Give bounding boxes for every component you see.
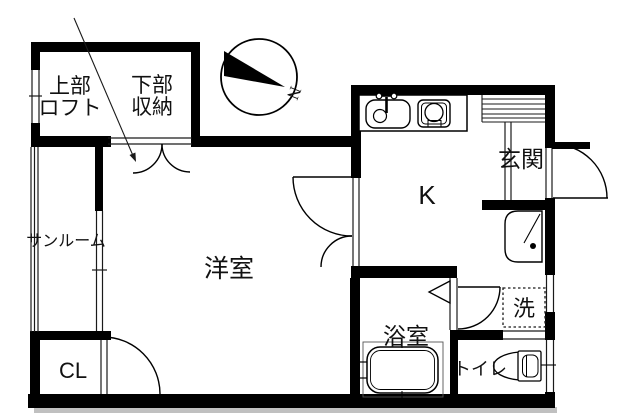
closet-door-arc <box>103 337 160 394</box>
storage-label-line2: 収納 <box>131 96 173 119</box>
storage-door-right-arc <box>162 144 190 172</box>
compass: N <box>221 39 305 115</box>
storage-label-line1: 下部 <box>131 74 173 97</box>
floor-plan-drawing: N <box>0 0 640 418</box>
toilet-label: トイレ <box>453 359 507 379</box>
closet-label: CL <box>59 358 87 383</box>
washroom-door-arc <box>458 287 500 329</box>
kitchen-counter <box>359 93 467 131</box>
kitchen-label: K <box>418 180 436 210</box>
western-room-door-arc <box>293 177 352 236</box>
loft-label-line2: ロフト <box>39 97 102 120</box>
bathroom-label: 浴室 <box>383 323 429 349</box>
bathtub-icon <box>354 341 443 398</box>
bathroom-folding-door-icon <box>429 281 450 303</box>
windows <box>29 70 554 392</box>
western-room-subdoor-arc <box>321 236 352 267</box>
entrance-door-panel <box>552 142 590 149</box>
shoe-cabinet-icon <box>482 95 545 122</box>
entrance-label: 玄関 <box>498 146 544 172</box>
western-room-label: 洋室 <box>204 255 254 283</box>
loft-label-line1: 上部 <box>49 75 91 98</box>
floor-plan: N <box>0 0 640 418</box>
washbasin-icon <box>505 211 542 262</box>
sunroom-label: サンルーム <box>26 233 106 250</box>
storage-door-left-arc <box>133 144 162 173</box>
entrance-door-arc <box>553 144 607 198</box>
laundry-label: 洗 <box>513 296 535 321</box>
